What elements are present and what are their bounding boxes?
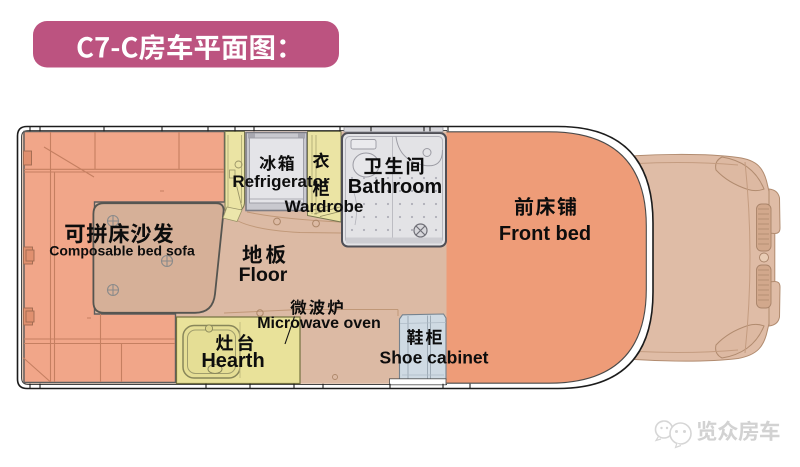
svg-text:Wardrobe: Wardrobe: [285, 197, 364, 216]
svg-text:Shoe cabinet: Shoe cabinet: [380, 348, 489, 368]
svg-text:Composable bed sofa: Composable bed sofa: [49, 243, 195, 259]
svg-text:Floor: Floor: [239, 264, 288, 286]
svg-text:Bathroom: Bathroom: [348, 176, 442, 198]
svg-text:Hearth: Hearth: [201, 350, 264, 372]
svg-text:Front bed: Front bed: [499, 223, 591, 245]
svg-text:Microwave oven: Microwave oven: [257, 315, 381, 332]
